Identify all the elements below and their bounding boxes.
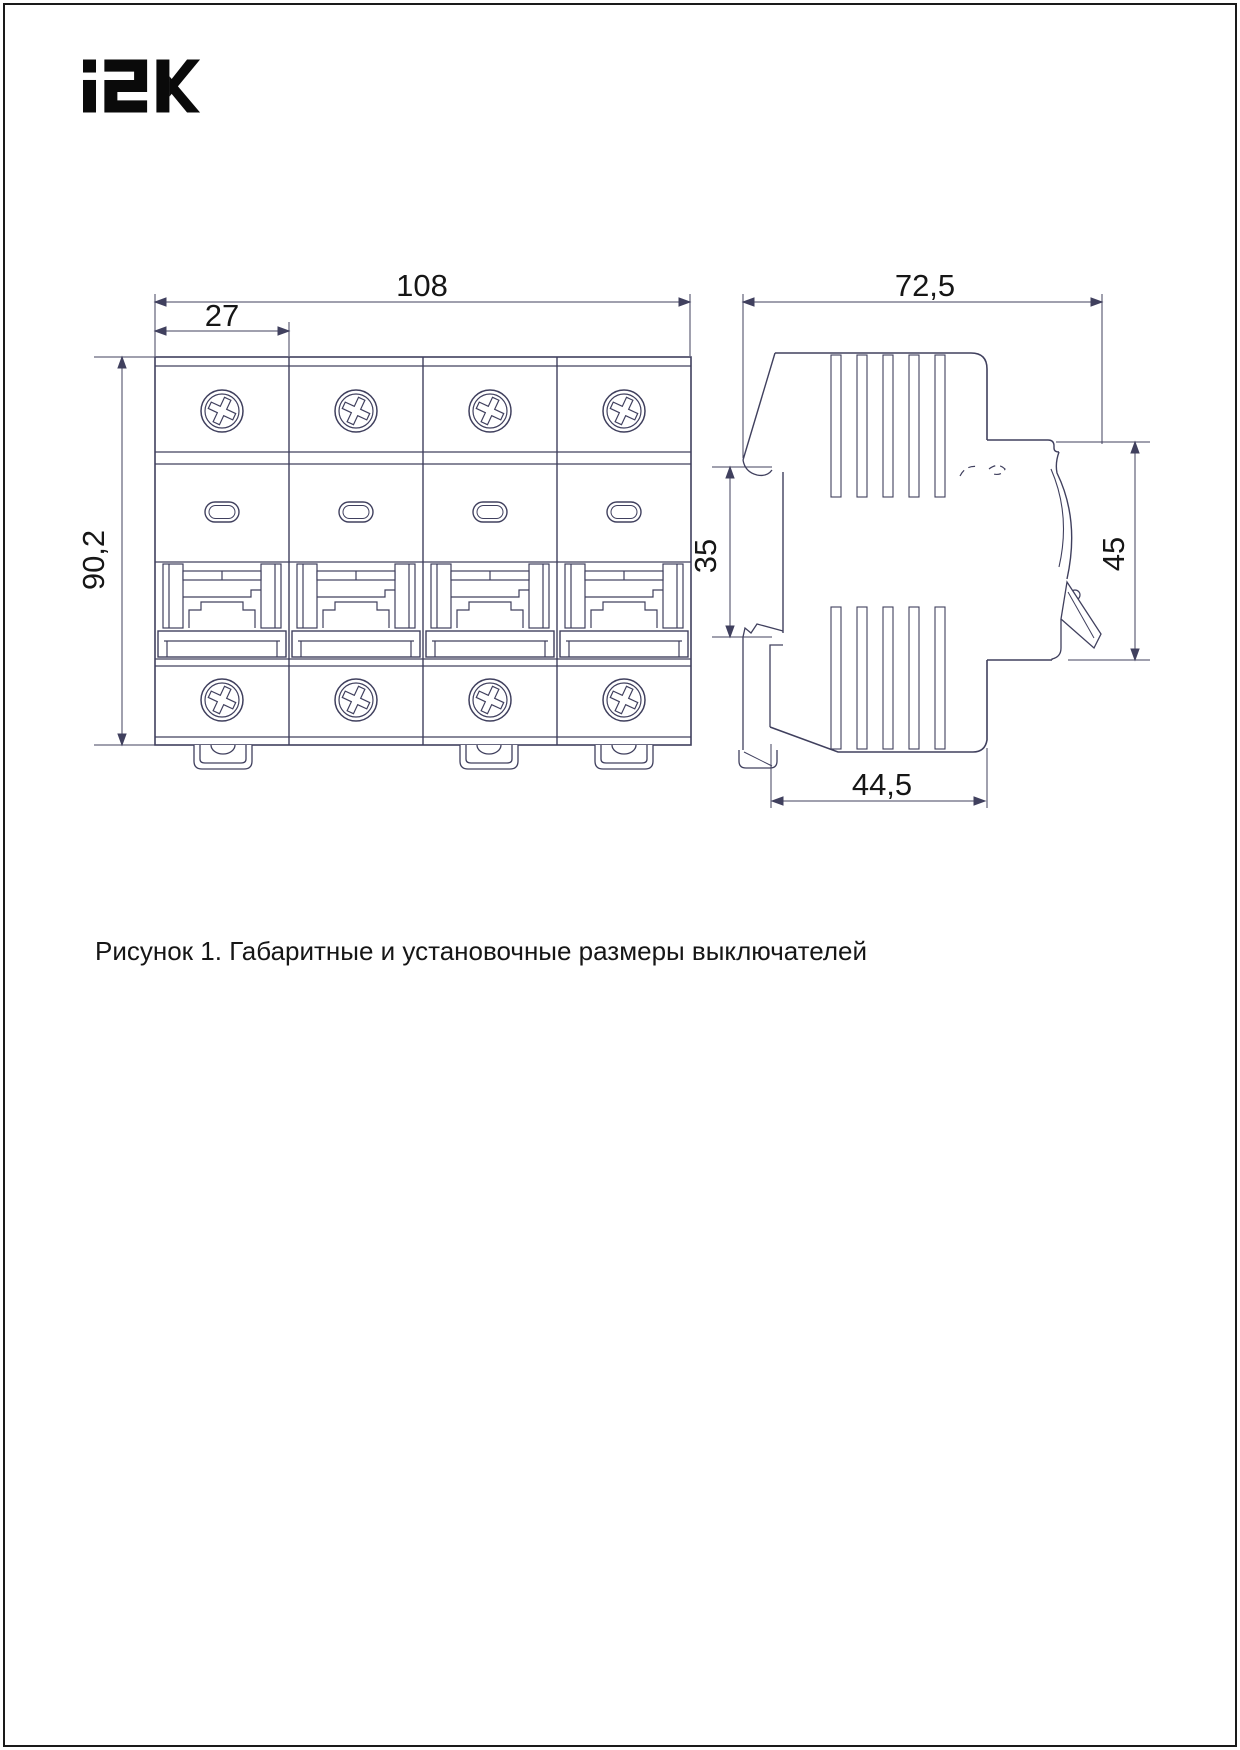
screw-icon [603, 390, 645, 432]
side-top-edge [775, 353, 987, 440]
dimension-drawing: 108 27 72,5 90,2 35 45 44,5 [0, 0, 1240, 900]
dim-overall-depth: 72,5 [895, 268, 955, 303]
claw-foot-detail [744, 752, 772, 766]
window-icon [205, 502, 239, 522]
figure-caption: Рисунок 1. Габаритные и установочные раз… [95, 936, 867, 966]
dim-overall-width: 108 [396, 268, 448, 303]
datasheet-page: iEK [0, 0, 1240, 1750]
dim-mounting-depth: 44,5 [852, 767, 912, 802]
din-clip-tab [595, 745, 653, 769]
hidden-detail [960, 466, 1005, 477]
dim-overall-height: 90,2 [76, 530, 111, 590]
side-bottom-edge [770, 660, 987, 752]
screw-icon [335, 390, 377, 432]
din-claw-top [743, 460, 772, 475]
window-icon [339, 502, 373, 522]
side-front-slope [743, 353, 775, 460]
screw-icon [201, 390, 243, 432]
screw-icon [201, 679, 243, 721]
screw-icon [603, 679, 645, 721]
din-clip-tab [460, 745, 518, 769]
vent-fins-top [831, 355, 945, 497]
toggle-lever-profile [987, 440, 1101, 660]
window-icon [607, 502, 641, 522]
dim-din-rail-height: 35 [688, 539, 723, 573]
screw-icon [335, 679, 377, 721]
dim-front-part-height: 45 [1096, 537, 1131, 571]
din-claw-bottom [743, 624, 783, 750]
din-clip-tab [194, 745, 252, 769]
din-clips [194, 745, 653, 769]
window-icon [473, 502, 507, 522]
claw-recess-edge [770, 645, 783, 727]
front-view [155, 357, 691, 769]
vent-fins-bottom [831, 607, 945, 749]
screw-icon [469, 390, 511, 432]
dim-pole-width: 27 [205, 298, 239, 333]
side-view [739, 353, 1101, 768]
screw-icon [469, 679, 511, 721]
